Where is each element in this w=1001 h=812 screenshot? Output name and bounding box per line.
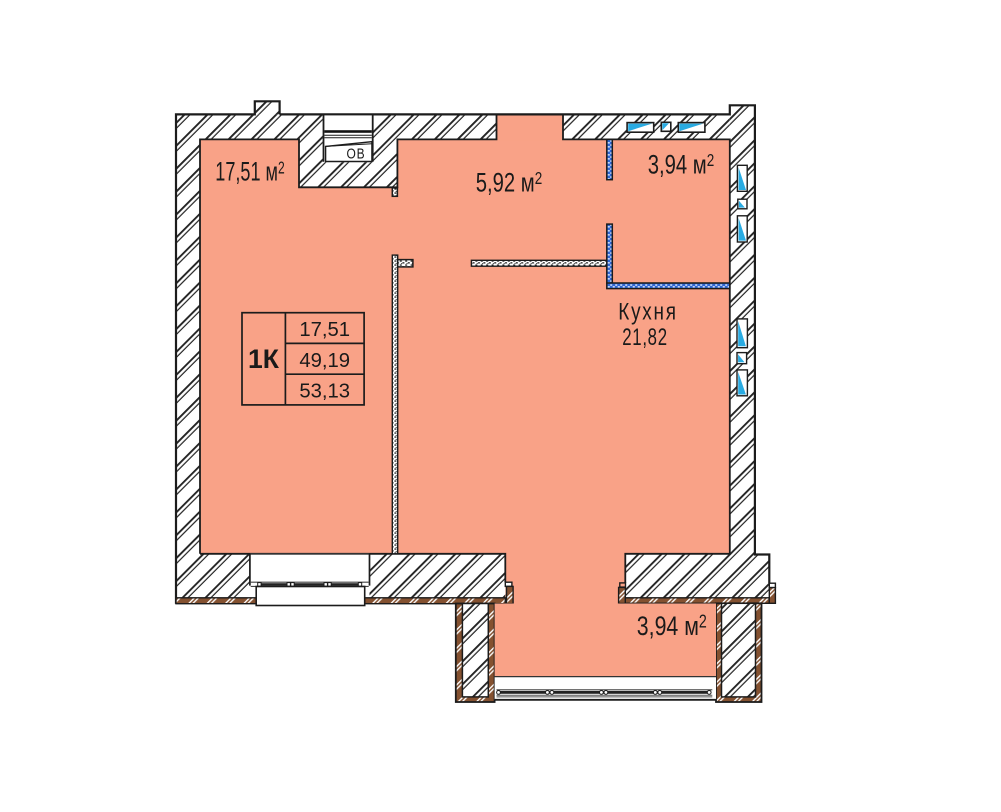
svg-text:ОВ: ОВ: [347, 145, 366, 162]
svg-text:1К: 1К: [248, 344, 280, 374]
svg-text:Кухня: Кухня: [618, 297, 677, 325]
svg-text:17,51 м2: 17,51 м2: [215, 156, 284, 187]
svg-text:49,19: 49,19: [299, 350, 350, 372]
svg-text:53,13: 53,13: [299, 380, 350, 402]
svg-text:21,82: 21,82: [622, 324, 668, 351]
svg-text:5,92 м2: 5,92 м2: [476, 168, 543, 199]
svg-text:3,94 м2: 3,94 м2: [648, 150, 715, 181]
svg-text:17,51: 17,51: [299, 319, 350, 341]
svg-text:3,94 м2: 3,94 м2: [637, 612, 707, 642]
